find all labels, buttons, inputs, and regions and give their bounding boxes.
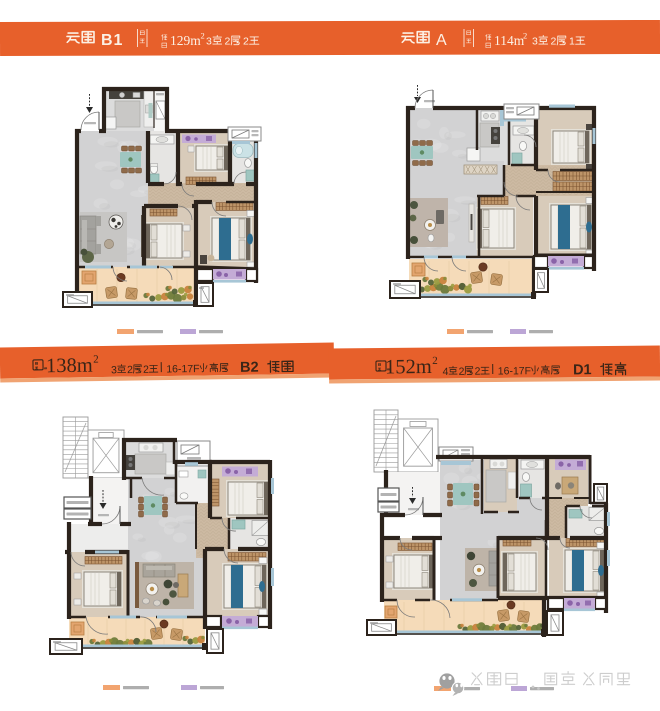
svg-text:3: 3 xyxy=(532,36,538,48)
svg-text:B1: B1 xyxy=(101,32,123,49)
svg-text:1: 1 xyxy=(569,36,575,48)
svg-text:3: 3 xyxy=(111,364,117,376)
svg-text:138m: 138m xyxy=(46,355,93,378)
svg-text:D1: D1 xyxy=(573,362,592,378)
svg-text:129m: 129m xyxy=(170,33,201,48)
svg-text:2: 2 xyxy=(523,31,527,41)
svg-text:B2: B2 xyxy=(240,360,259,376)
svg-text:152m: 152m xyxy=(385,356,432,378)
svg-text:4: 4 xyxy=(443,366,449,378)
svg-text:2: 2 xyxy=(243,36,249,48)
svg-text:16-17F: 16-17F xyxy=(498,365,531,377)
svg-text:2: 2 xyxy=(551,36,557,48)
svg-text:3: 3 xyxy=(206,36,212,48)
svg-text:A: A xyxy=(436,32,448,49)
svg-text:2: 2 xyxy=(143,364,149,376)
svg-text:2: 2 xyxy=(127,364,133,376)
svg-text:16-17F: 16-17F xyxy=(166,363,199,375)
svg-text:2: 2 xyxy=(225,36,231,48)
svg-text:2: 2 xyxy=(459,366,465,378)
svg-text:2: 2 xyxy=(201,31,205,41)
svg-text:114m: 114m xyxy=(494,33,525,48)
svg-text:2: 2 xyxy=(432,355,438,367)
svg-text:2: 2 xyxy=(475,366,481,378)
svg-text:2: 2 xyxy=(93,354,99,366)
